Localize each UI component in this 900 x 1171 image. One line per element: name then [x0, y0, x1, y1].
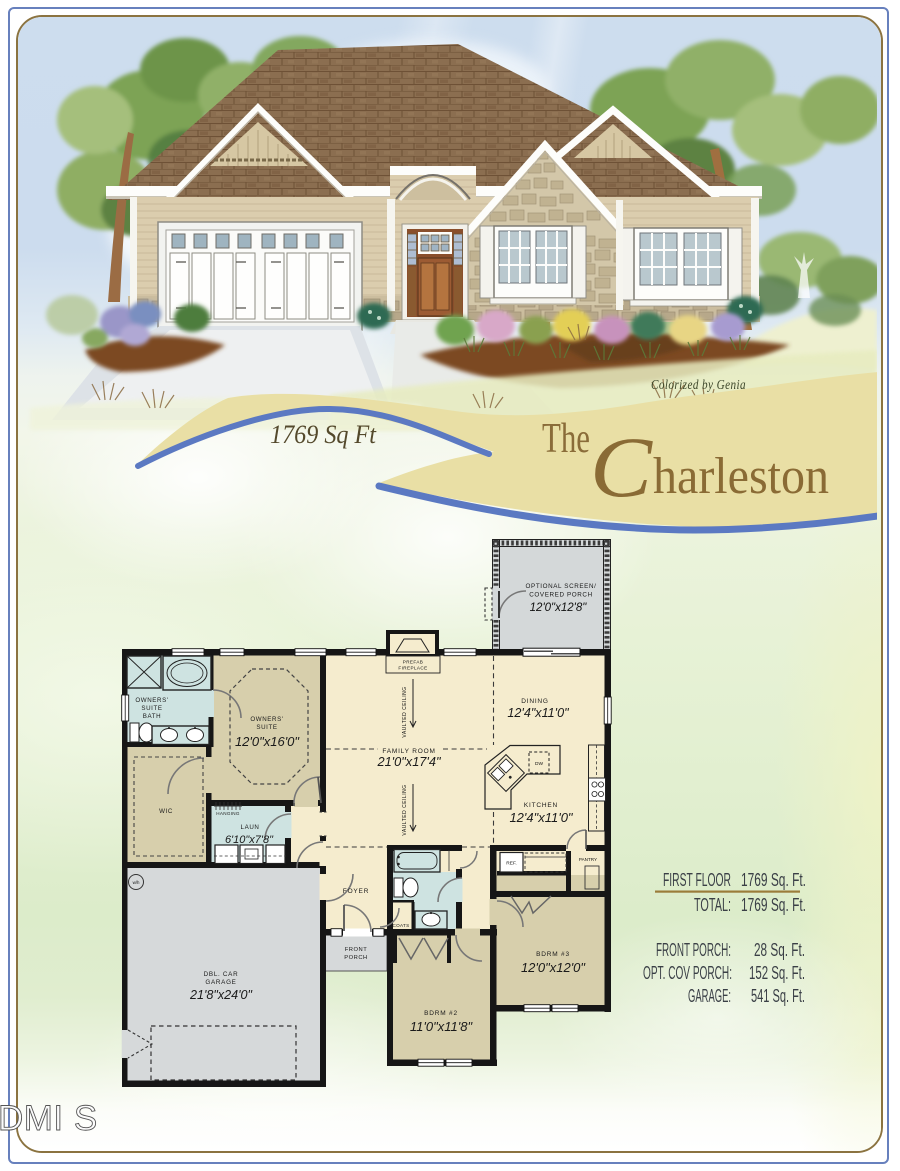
svg-text:GARAGE:: GARAGE:: [688, 985, 731, 1006]
svg-text:152 Sq. Ft.: 152 Sq. Ft.: [749, 962, 805, 983]
svg-text:1769 Sq Ft: 1769 Sq Ft: [270, 420, 377, 449]
svg-text:VAULTED CEILING: VAULTED CEILING: [402, 686, 408, 737]
svg-text:HANGING: HANGING: [216, 811, 240, 816]
svg-text:TOTAL:: TOTAL:: [694, 894, 731, 915]
svg-text:21'8"x24'0": 21'8"x24'0": [189, 988, 253, 1002]
svg-text:6'10"x7'8": 6'10"x7'8": [225, 834, 274, 846]
svg-text:OPTIONAL SCREEN/: OPTIONAL SCREEN/: [526, 583, 597, 590]
svg-text:SUITE: SUITE: [141, 705, 162, 712]
svg-text:541 Sq. Ft.: 541 Sq. Ft.: [751, 985, 805, 1006]
svg-text:PORCH: PORCH: [344, 955, 367, 961]
svg-text:12'0"x12'8": 12'0"x12'8": [530, 602, 588, 614]
svg-text:28 Sq. Ft.: 28 Sq. Ft.: [754, 939, 805, 960]
svg-text:PREFAB: PREFAB: [403, 660, 424, 665]
svg-text:FIRST FLOOR: FIRST FLOOR: [663, 869, 731, 890]
svg-text:BATH: BATH: [143, 713, 161, 720]
svg-text:OWNERS': OWNERS': [250, 716, 283, 723]
svg-text:FIREPLACE: FIREPLACE: [398, 666, 427, 671]
svg-text:WIC: WIC: [159, 808, 173, 815]
svg-text:OWNERS': OWNERS': [135, 697, 168, 704]
svg-text:12'4"x11'0": 12'4"x11'0": [507, 706, 569, 720]
svg-text:12'0"x12'0": 12'0"x12'0": [521, 960, 586, 975]
svg-text:FRONT PORCH:: FRONT PORCH:: [656, 939, 731, 960]
svg-text:FRONT: FRONT: [345, 947, 367, 953]
svg-text:DBL. CAR: DBL. CAR: [204, 971, 239, 978]
svg-text:C: C: [590, 419, 654, 515]
svg-text:BDRM #3: BDRM #3: [536, 951, 570, 958]
svg-text:GARAGE: GARAGE: [205, 979, 236, 986]
svg-text:12'0"x16'0": 12'0"x16'0": [235, 734, 300, 749]
svg-text:BDRM #2: BDRM #2: [424, 1010, 458, 1017]
svg-text:Colorized by Genia: Colorized by Genia: [651, 377, 746, 392]
svg-text:1769 Sq. Ft.: 1769 Sq. Ft.: [741, 869, 806, 890]
svg-text:11'0"x11'8": 11'0"x11'8": [410, 1019, 474, 1034]
svg-text:DW: DW: [535, 761, 543, 767]
svg-text:1769 Sq. Ft.: 1769 Sq. Ft.: [741, 894, 806, 915]
svg-text:w/h: w/h: [133, 880, 140, 885]
svg-text:harleston: harleston: [653, 448, 829, 505]
svg-text:DINING: DINING: [521, 698, 549, 705]
svg-text:COVERED PORCH: COVERED PORCH: [529, 592, 592, 599]
svg-text:FOYER: FOYER: [343, 888, 369, 895]
svg-text:12'4"x11'0": 12'4"x11'0": [509, 810, 573, 825]
svg-text:KITCHEN: KITCHEN: [524, 802, 558, 809]
svg-text:DMI S: DMI S: [0, 1099, 98, 1138]
svg-text:COATS: COATS: [393, 923, 410, 928]
svg-text:21'0"x17'4": 21'0"x17'4": [376, 754, 442, 769]
svg-text:LAUN: LAUN: [241, 824, 260, 831]
svg-text:OPT. COV PORCH:: OPT. COV PORCH:: [643, 962, 732, 983]
svg-text:SUITE: SUITE: [256, 724, 277, 731]
svg-text:The: The: [542, 416, 590, 462]
svg-text:REF.: REF.: [506, 861, 516, 867]
svg-text:PANTRY: PANTRY: [579, 857, 597, 862]
svg-text:VAULTED CEILING: VAULTED CEILING: [402, 784, 408, 835]
